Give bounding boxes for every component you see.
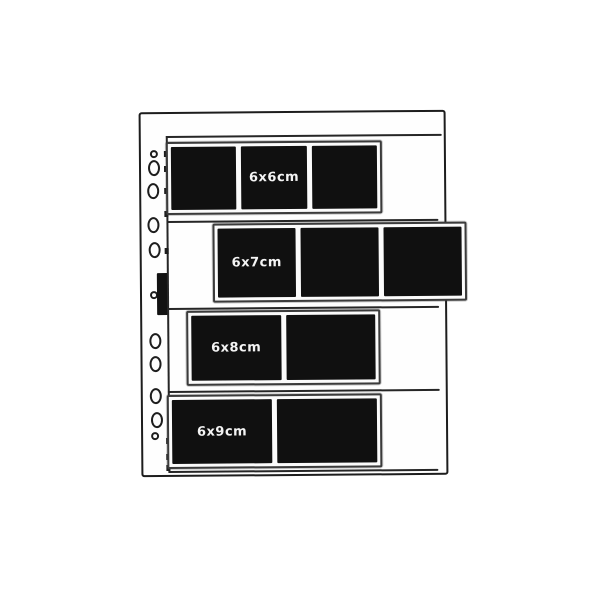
binder-hole-icon [149, 242, 161, 258]
binder-hole-icon [149, 333, 161, 349]
film-strip: 6x9cm [172, 398, 377, 464]
format-label-6x9: 6x9cm [197, 424, 247, 439]
film-frame: 6x6cm [241, 146, 307, 210]
film-frame [300, 227, 379, 297]
scanned-illustration: { "figure": { "description": "Line illus… [0, 0, 600, 600]
film-strip-6x8: 6x8cm [186, 309, 381, 386]
binder-hole-icon [149, 356, 161, 372]
binder-hole-icon [150, 150, 158, 158]
film-strip-6x6: 6x6cm [166, 140, 383, 215]
film-strip: 6x6cm [171, 145, 377, 210]
film-frame [171, 146, 237, 210]
binder-hole-icon [147, 183, 159, 199]
film-frame [286, 314, 376, 380]
format-label-6x8: 6x8cm [211, 340, 261, 355]
pocket-seam [168, 389, 440, 393]
film-frame [383, 227, 462, 297]
film-frame [311, 145, 377, 209]
film-frame: 6x8cm [191, 315, 281, 381]
binder-hole-icon [150, 388, 162, 404]
format-label-6x7: 6x7cm [232, 255, 282, 270]
sketch-tick [165, 248, 169, 254]
sheet-bottom-edge [168, 469, 438, 473]
format-label-6x6: 6x6cm [249, 170, 299, 185]
film-frame [277, 398, 377, 463]
negative-filing-page: 6x6cm 6x7cm 6x8cm 6x9cm [139, 110, 449, 477]
film-frame: 6x7cm [217, 228, 296, 298]
film-strip: 6x8cm [191, 314, 376, 380]
binder-hole-icon [151, 412, 163, 428]
film-strip-6x9: 6x9cm [167, 393, 383, 469]
film-frame: 6x9cm [172, 399, 272, 464]
film-strip-6x7: 6x7cm [212, 222, 467, 303]
binder-hole-icon [148, 160, 160, 176]
binder-hole-icon [147, 217, 159, 233]
sheet-top-edge [166, 134, 442, 138]
binder-holes-column [141, 112, 444, 114]
binder-hole-icon [151, 432, 159, 440]
film-strip: 6x7cm [217, 227, 462, 298]
